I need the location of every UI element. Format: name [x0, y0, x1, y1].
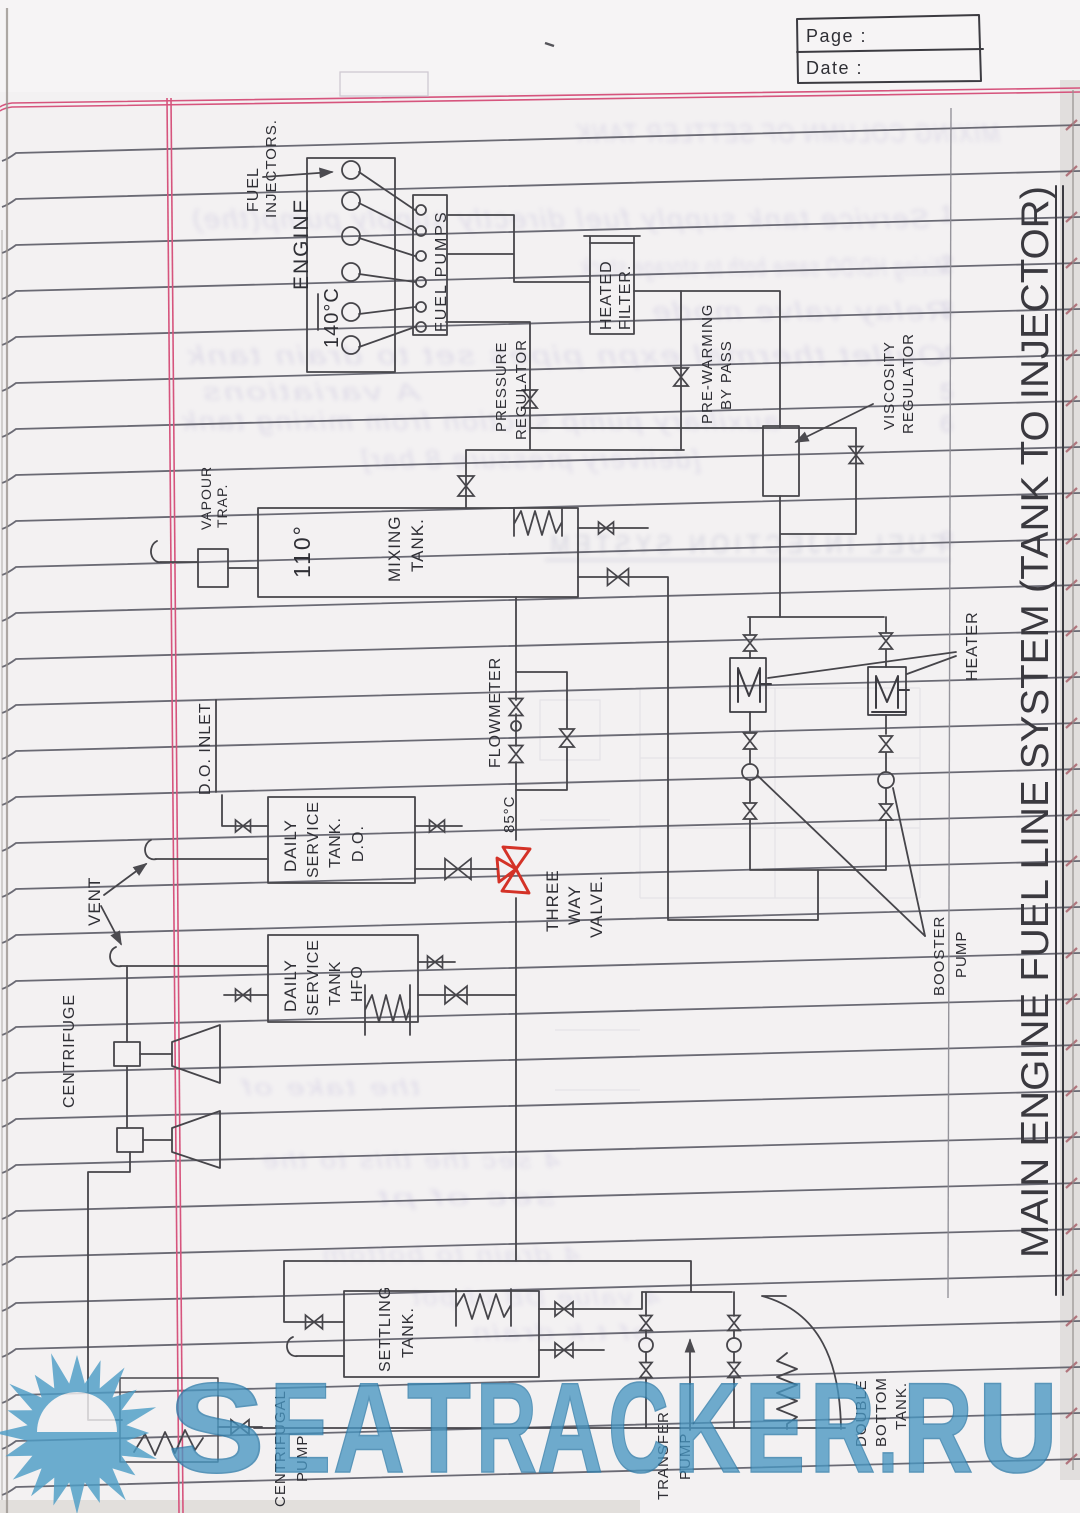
svg-text:D.O. INLET: D.O. INLET	[197, 702, 214, 795]
svg-text:110°: 110°	[289, 524, 315, 578]
svg-text:VAPOUR: VAPOUR	[198, 466, 214, 530]
svg-text:5: 5	[940, 379, 953, 406]
svg-text:VISCOSITY: VISCOSITY	[881, 341, 898, 430]
svg-text:6: 6	[940, 411, 953, 438]
svg-text:Page :: Page :	[806, 26, 867, 46]
svg-text:8: 8	[940, 527, 953, 554]
svg-text:D.O.: D.O.	[350, 825, 367, 862]
svg-text:ENGINE: ENGINE	[290, 197, 313, 290]
svg-text:VENT: VENT	[85, 877, 104, 926]
svg-text:.: .	[878, 1357, 898, 1500]
svg-text:S: S	[168, 1357, 265, 1500]
svg-text:Date :: Date :	[806, 58, 863, 78]
svg-text:A variations: A variations	[200, 379, 423, 406]
svg-text:A: A	[537, 1357, 603, 1500]
svg-text:THREE: THREE	[543, 869, 562, 932]
svg-text:PRESSURE: PRESSURE	[493, 341, 510, 432]
svg-text:3: 3	[940, 297, 953, 324]
svg-text:A: A	[333, 1357, 405, 1500]
svg-text:140°C: 140°C	[321, 287, 343, 348]
svg-text:T: T	[407, 1357, 471, 1500]
svg-text:HEATER: HEATER	[964, 611, 981, 681]
svg-text:DAILY: DAILY	[281, 819, 300, 872]
svg-text:2: 2	[940, 251, 953, 278]
svg-text:HFO: HFO	[349, 965, 366, 1002]
svg-text:FLOWMETER: FLOWMETER	[487, 657, 504, 768]
svg-text:PRE-WARMING: PRE-WARMING	[699, 304, 716, 424]
svg-text:FILTER.: FILTER.	[617, 265, 634, 330]
svg-text:FUEL: FUEL	[245, 167, 262, 212]
svg-text:TANK: TANK	[327, 961, 344, 1006]
svg-text:E: E	[270, 1357, 331, 1500]
svg-text:MAIN ENGINE FUEL LINE SYSTEM (: MAIN ENGINE FUEL LINE SYSTEM (TANK TO IN…	[1014, 186, 1057, 1258]
svg-text:VALVE.: VALVE.	[587, 875, 606, 938]
svg-text:TANK.: TANK.	[408, 518, 427, 572]
svg-text:TRAP.: TRAP.	[214, 484, 230, 528]
svg-text:DAILY: DAILY	[281, 959, 300, 1012]
svg-text:WAY: WAY	[565, 885, 584, 925]
svg-text:MIXING: MIXING	[385, 516, 404, 582]
svg-text:U: U	[978, 1357, 1058, 1500]
svg-text:E: E	[745, 1357, 805, 1500]
svg-text:CENTRIFUGE: CENTRIFUGE	[61, 994, 78, 1108]
svg-text:SERVICE: SERVICE	[305, 939, 322, 1016]
svg-text:REGULATOR: REGULATOR	[900, 333, 917, 434]
svg-text:FUEL PUMPS: FUEL PUMPS	[433, 210, 450, 332]
svg-text:TANK.: TANK.	[400, 1307, 417, 1358]
svg-text:INJECTORS.: INJECTORS.	[263, 119, 280, 218]
svg-text:BY PASS: BY PASS	[718, 340, 735, 410]
svg-text:Outlet thermal expn pipes set: Outlet thermal expn pipes set to drain t…	[185, 340, 945, 370]
svg-text:SERVICE: SERVICE	[305, 801, 322, 878]
svg-text:C: C	[608, 1357, 669, 1500]
svg-text:Relay valve mode: Relay valve mode	[650, 296, 950, 326]
svg-text:R: R	[903, 1357, 973, 1500]
svg-text:HEATED: HEATED	[598, 260, 615, 330]
svg-text:4: 4	[940, 341, 953, 368]
svg-text:the take of: the take of	[239, 1075, 420, 1100]
svg-text:PUMP: PUMP	[953, 931, 970, 978]
svg-text:BOOSTER: BOOSTER	[931, 916, 948, 996]
svg-text:R: R	[810, 1357, 875, 1500]
svg-text:REGULATOR: REGULATOR	[513, 339, 530, 440]
svg-text:85°C: 85°C	[501, 795, 518, 833]
svg-text:TANK.: TANK.	[327, 817, 344, 868]
svg-text:K: K	[674, 1357, 740, 1500]
svg-text:R: R	[476, 1357, 537, 1500]
